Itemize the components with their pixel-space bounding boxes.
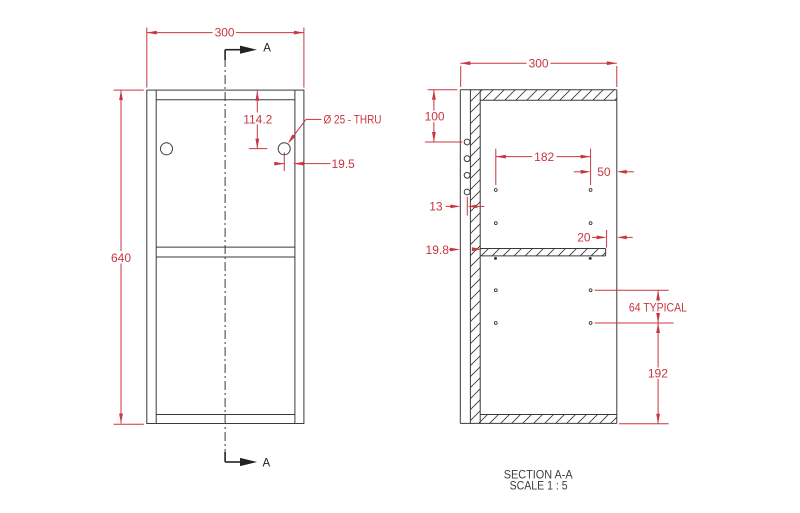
svg-text:300: 300 xyxy=(529,56,549,70)
svg-text:100: 100 xyxy=(425,110,445,124)
svg-text:A: A xyxy=(263,42,271,54)
svg-text:182: 182 xyxy=(534,150,554,164)
svg-text:300: 300 xyxy=(215,26,235,40)
svg-text:640: 640 xyxy=(111,251,131,265)
svg-text:50: 50 xyxy=(597,165,611,179)
svg-text:Ø 25 - THRU: Ø 25 - THRU xyxy=(324,112,382,126)
svg-text:114.2: 114.2 xyxy=(243,112,272,126)
svg-text:SCALE 1 : 5: SCALE 1 : 5 xyxy=(510,480,568,492)
svg-text:A: A xyxy=(263,457,271,469)
svg-text:64 TYPICAL: 64 TYPICAL xyxy=(629,300,687,314)
svg-text:13: 13 xyxy=(429,200,443,214)
svg-text:192: 192 xyxy=(648,367,668,381)
svg-text:20: 20 xyxy=(577,231,591,245)
svg-text:19.8: 19.8 xyxy=(426,243,450,257)
svg-text:19.5: 19.5 xyxy=(332,157,356,171)
